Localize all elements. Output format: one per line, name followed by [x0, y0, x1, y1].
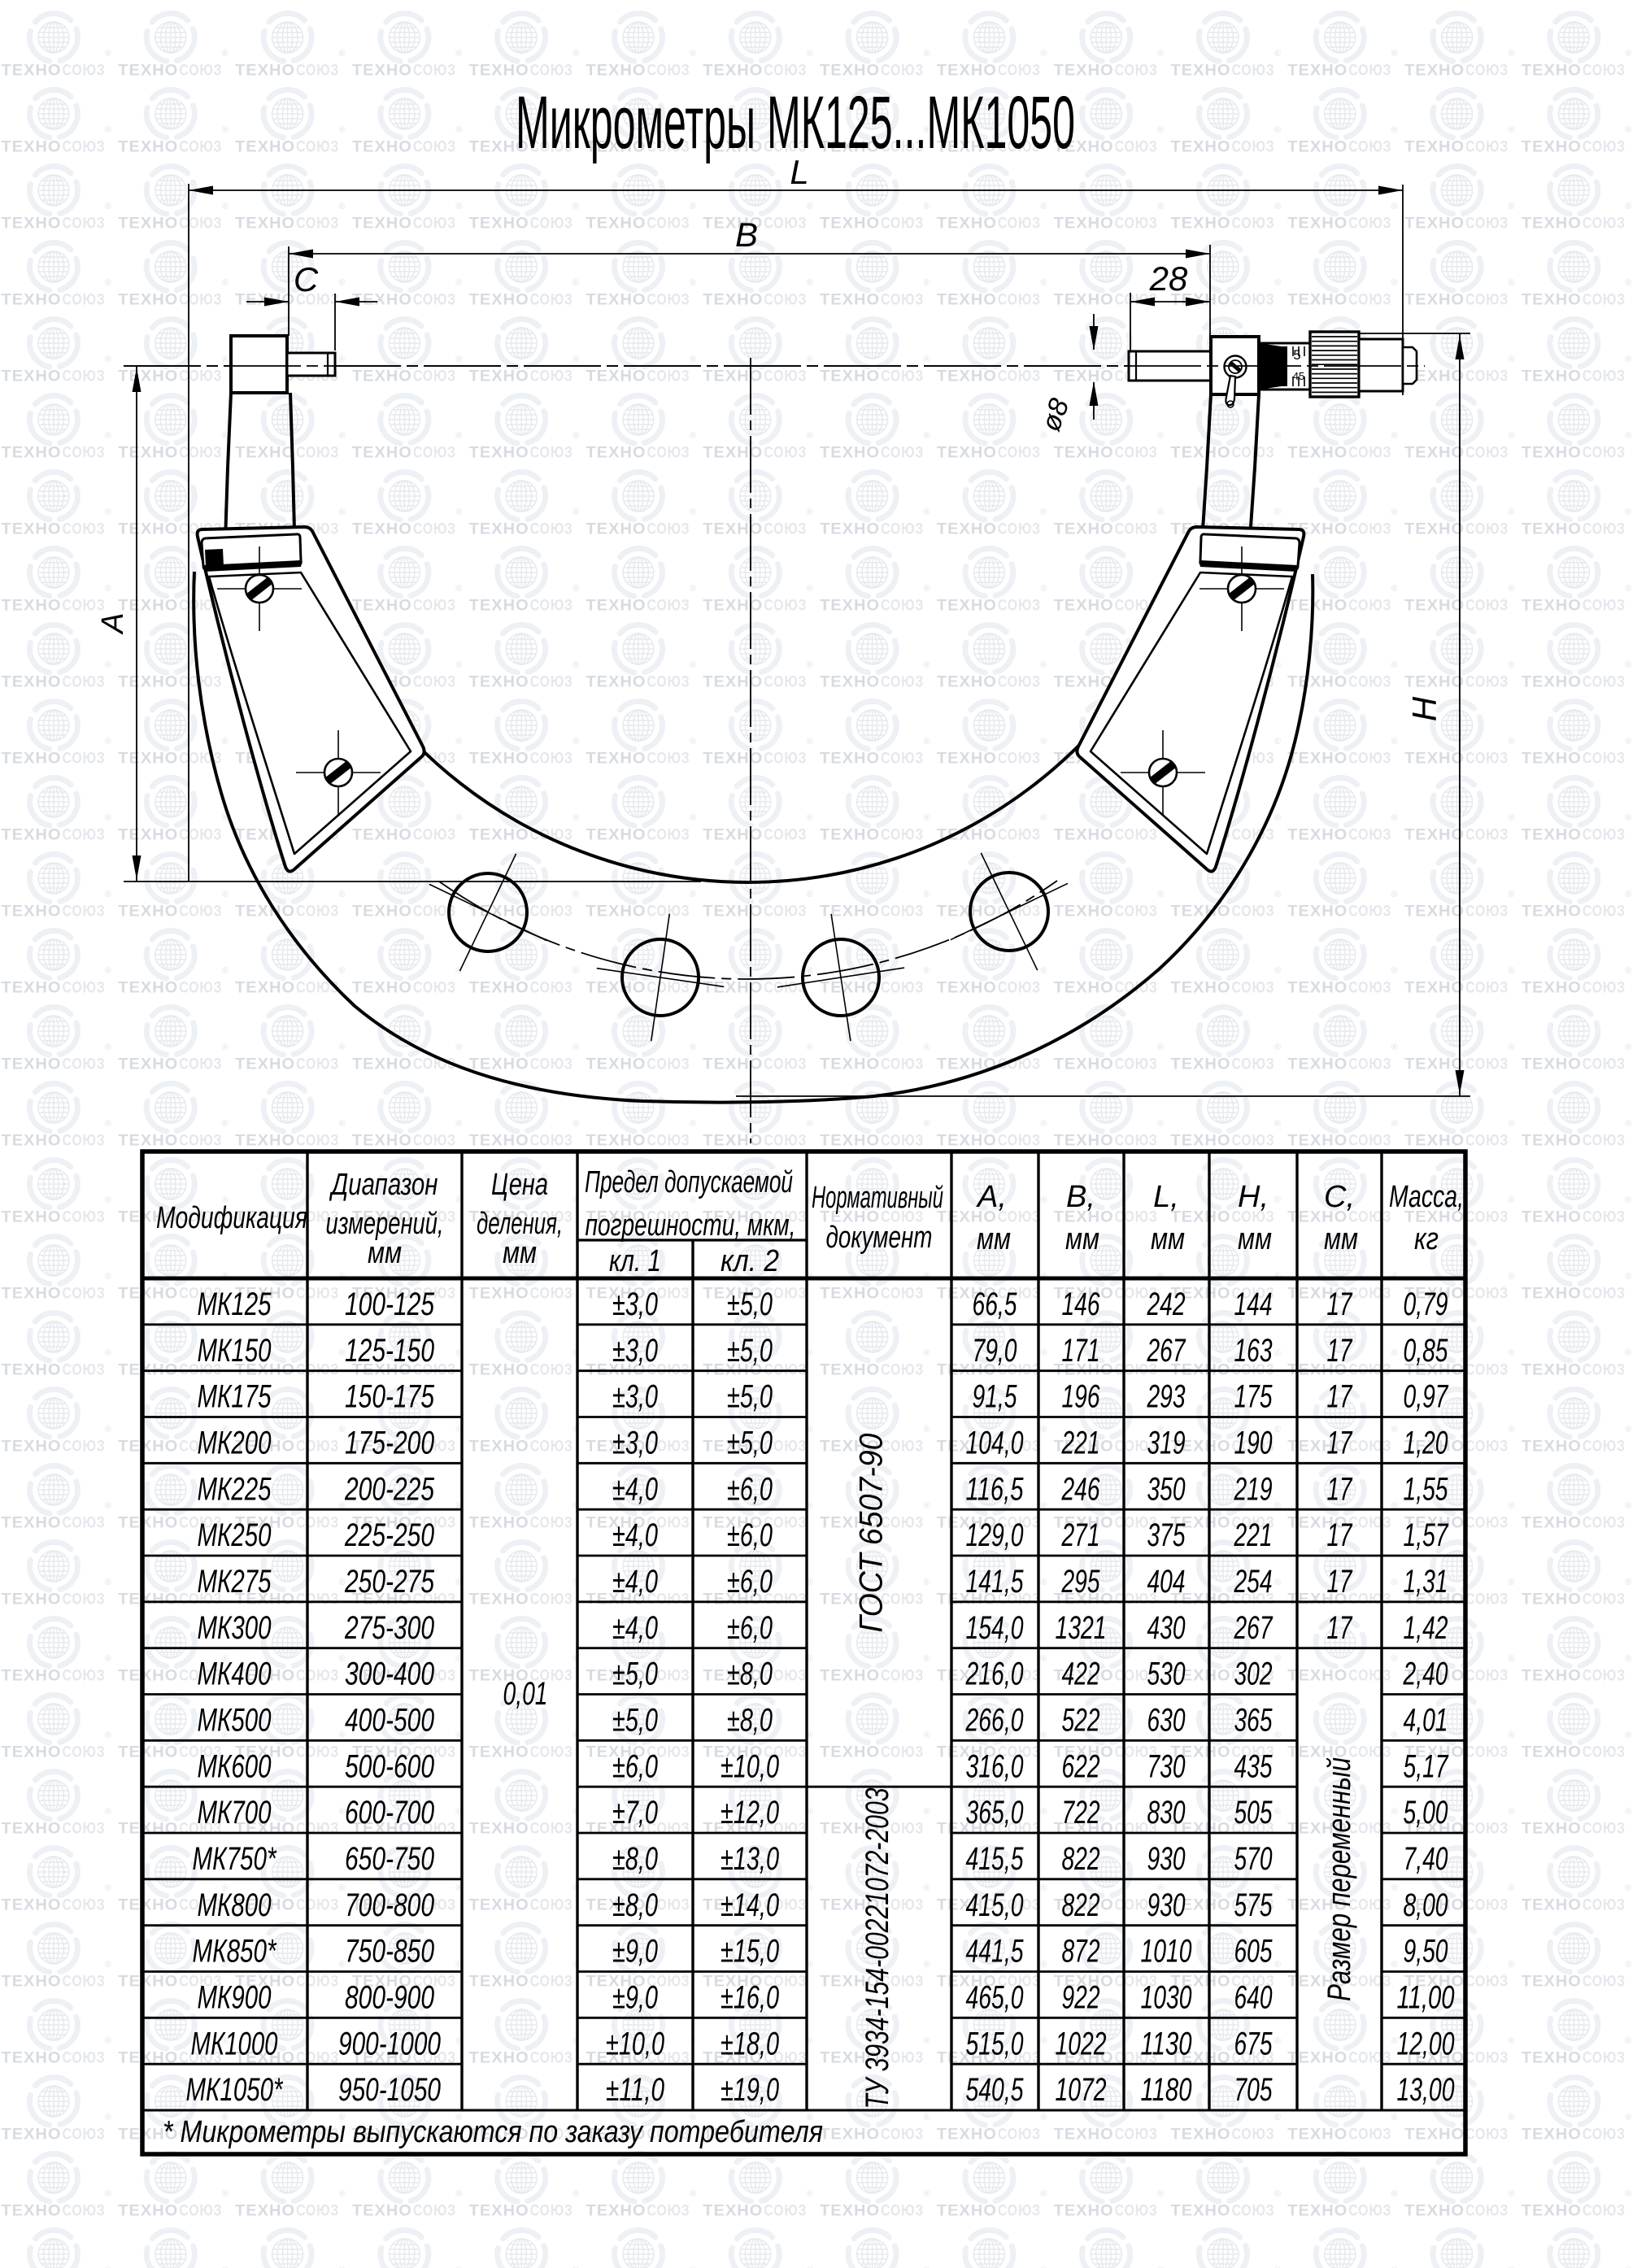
svg-text:404: 404	[1147, 1564, 1186, 1600]
svg-text:216,0: 216,0	[965, 1656, 1024, 1692]
svg-text:кл. 1: кл. 1	[609, 1244, 661, 1278]
svg-text:400-500: 400-500	[345, 1703, 434, 1739]
svg-text:±7,0: ±7,0	[612, 1795, 658, 1831]
svg-text:141,5: 141,5	[966, 1564, 1025, 1600]
svg-text:275-300: 275-300	[344, 1610, 434, 1646]
svg-text:±8,0: ±8,0	[727, 1656, 773, 1692]
svg-text:А,: А,	[976, 1180, 1007, 1214]
svg-text:730: 730	[1147, 1748, 1186, 1784]
svg-text:575: 575	[1234, 1887, 1273, 1923]
svg-text:1072: 1072	[1056, 2072, 1107, 2108]
svg-text:190: 190	[1234, 1426, 1273, 1461]
svg-text:Микрометры МК125...МК1050: Микрометры МК125...МК1050	[516, 81, 1075, 164]
svg-text:±10,0: ±10,0	[606, 2026, 664, 2061]
svg-text:125-150: 125-150	[345, 1333, 434, 1369]
svg-text:530: 530	[1147, 1656, 1186, 1692]
svg-text:С,: С,	[1324, 1180, 1355, 1214]
svg-text:±3,0: ±3,0	[612, 1286, 658, 1322]
svg-text:435: 435	[1234, 1748, 1273, 1784]
svg-text:12,00: 12,00	[1397, 2026, 1455, 2061]
svg-text:±10,0: ±10,0	[721, 1748, 779, 1784]
svg-text:±4,0: ±4,0	[612, 1471, 658, 1507]
svg-text:675: 675	[1234, 2026, 1273, 2061]
svg-text:1130: 1130	[1141, 2026, 1192, 2061]
svg-text:МК225: МК225	[198, 1471, 272, 1507]
svg-text:±8,0: ±8,0	[727, 1703, 773, 1739]
svg-text:±9,0: ±9,0	[612, 1980, 658, 2016]
svg-text:129,0: 129,0	[966, 1517, 1024, 1553]
svg-text:17: 17	[1327, 1471, 1353, 1507]
svg-text:±3,0: ±3,0	[612, 1379, 658, 1415]
svg-text:350: 350	[1147, 1471, 1186, 1507]
svg-text:погрешности, мкм,: погрешности, мкм,	[586, 1208, 796, 1243]
svg-text:мм: мм	[1324, 1222, 1358, 1256]
svg-text:МК125: МК125	[198, 1286, 272, 1322]
svg-text:415,0: 415,0	[966, 1887, 1024, 1923]
svg-text:мм: мм	[1238, 1222, 1272, 1256]
svg-text:830: 830	[1147, 1795, 1186, 1831]
svg-text:±5,0: ±5,0	[727, 1379, 773, 1415]
svg-text:МК175: МК175	[198, 1379, 272, 1415]
svg-text:91,5: 91,5	[973, 1379, 1018, 1415]
svg-text:±14,0: ±14,0	[721, 1887, 779, 1923]
svg-text:1,42: 1,42	[1404, 1610, 1448, 1646]
svg-text:Размер переменный: Размер переменный	[1321, 1757, 1357, 2001]
svg-text:1010: 1010	[1141, 1934, 1192, 1970]
svg-text:±3,0: ±3,0	[612, 1426, 658, 1461]
svg-text:104,0: 104,0	[966, 1426, 1024, 1461]
svg-text:293: 293	[1147, 1379, 1186, 1415]
svg-text:МК275: МК275	[198, 1564, 272, 1600]
svg-text:200-225: 200-225	[344, 1471, 434, 1507]
svg-text:267: 267	[1234, 1610, 1273, 1646]
svg-text:316,0: 316,0	[966, 1748, 1024, 1784]
svg-text:522: 522	[1062, 1703, 1100, 1739]
svg-text:документ: документ	[826, 1221, 933, 1255]
svg-text:кг: кг	[1414, 1222, 1439, 1256]
svg-text:700-800: 700-800	[345, 1887, 434, 1923]
svg-text:Цена: Цена	[491, 1168, 548, 1202]
svg-text:±11,0: ±11,0	[606, 2072, 664, 2108]
svg-text:±5,0: ±5,0	[727, 1426, 773, 1461]
svg-text:17: 17	[1327, 1426, 1353, 1461]
svg-text:7,40: 7,40	[1404, 1841, 1448, 1877]
svg-text:9,50: 9,50	[1404, 1934, 1448, 1970]
svg-text:163: 163	[1234, 1333, 1273, 1369]
svg-text:375: 375	[1147, 1517, 1186, 1553]
svg-text:150-175: 150-175	[345, 1379, 435, 1415]
svg-text:1030: 1030	[1141, 1980, 1192, 2016]
svg-text:250-275: 250-275	[344, 1564, 434, 1600]
svg-text:±13,0: ±13,0	[721, 1841, 779, 1877]
svg-text:МК250: МК250	[198, 1517, 272, 1553]
svg-text:822: 822	[1062, 1887, 1100, 1923]
svg-text:мм: мм	[368, 1236, 402, 1270]
svg-text:±4,0: ±4,0	[612, 1564, 658, 1600]
svg-text:900-1000: 900-1000	[338, 2026, 441, 2061]
svg-text:±5,0: ±5,0	[727, 1333, 773, 1369]
svg-text:705: 705	[1234, 2072, 1273, 2108]
svg-text:5,00: 5,00	[1404, 1795, 1448, 1831]
svg-text:±6,0: ±6,0	[727, 1517, 773, 1553]
svg-text:±16,0: ±16,0	[721, 1980, 779, 2016]
svg-text:116,5: 116,5	[966, 1471, 1025, 1507]
svg-text:5,17: 5,17	[1404, 1748, 1449, 1784]
svg-text:МК700: МК700	[198, 1795, 272, 1831]
svg-text:302: 302	[1234, 1656, 1273, 1692]
svg-text:171: 171	[1062, 1333, 1100, 1369]
svg-text:605: 605	[1234, 1934, 1273, 1970]
svg-text:17: 17	[1327, 1379, 1353, 1415]
svg-text:мм: мм	[1065, 1222, 1099, 1256]
svg-text:1,57: 1,57	[1404, 1517, 1449, 1553]
svg-text:МК850*: МК850*	[193, 1934, 277, 1970]
svg-text:±19,0: ±19,0	[721, 2072, 779, 2108]
svg-text:11,00: 11,00	[1397, 1980, 1455, 2016]
svg-text:L: L	[790, 153, 808, 191]
svg-text:17: 17	[1327, 1333, 1353, 1369]
svg-text:МК900: МК900	[198, 1980, 272, 2016]
svg-text:±12,0: ±12,0	[721, 1795, 779, 1831]
svg-text:0,97: 0,97	[1404, 1379, 1449, 1415]
svg-text:B: B	[735, 215, 758, 254]
svg-text:кл. 2: кл. 2	[721, 1244, 779, 1278]
svg-text:266,0: 266,0	[965, 1703, 1024, 1739]
svg-text:422: 422	[1062, 1656, 1100, 1692]
svg-text:295: 295	[1061, 1564, 1100, 1600]
svg-text:221: 221	[1234, 1517, 1273, 1553]
svg-text:МК1050*: МК1050*	[186, 2072, 284, 2108]
svg-text:±9,0: ±9,0	[612, 1934, 658, 1970]
svg-text:441,5: 441,5	[966, 1934, 1025, 1970]
svg-text:±5,0: ±5,0	[612, 1656, 658, 1692]
svg-text:79,0: 79,0	[973, 1333, 1017, 1369]
svg-text:Масса,: Масса,	[1389, 1180, 1464, 1214]
svg-text:800-900: 800-900	[345, 1980, 434, 2016]
svg-text:300-400: 300-400	[345, 1656, 434, 1692]
svg-text:271: 271	[1061, 1517, 1100, 1553]
svg-text:45: 45	[1293, 370, 1304, 382]
svg-text:МК150: МК150	[198, 1333, 272, 1369]
svg-text:930: 930	[1147, 1841, 1186, 1877]
svg-text:922: 922	[1062, 1980, 1100, 2016]
svg-text:17: 17	[1327, 1610, 1353, 1646]
svg-text:930: 930	[1147, 1887, 1186, 1923]
svg-text:МК500: МК500	[198, 1703, 272, 1739]
svg-text:100-125: 100-125	[345, 1286, 435, 1322]
svg-text:822: 822	[1062, 1841, 1100, 1877]
svg-text:МК800: МК800	[198, 1887, 272, 1923]
svg-text:Модификация: Модификация	[156, 1201, 307, 1235]
svg-text:L,: L,	[1153, 1180, 1179, 1214]
svg-text:650-750: 650-750	[345, 1841, 434, 1877]
svg-text:430: 430	[1147, 1610, 1186, 1646]
svg-text:0,85: 0,85	[1404, 1333, 1449, 1369]
svg-text:622: 622	[1062, 1748, 1100, 1784]
svg-text:1321: 1321	[1056, 1610, 1107, 1646]
svg-text:H: H	[1405, 696, 1443, 721]
svg-text:505: 505	[1234, 1795, 1273, 1831]
svg-text:8,00: 8,00	[1404, 1887, 1448, 1923]
svg-text:В,: В,	[1066, 1180, 1095, 1214]
svg-text:66,5: 66,5	[973, 1286, 1018, 1322]
svg-text:мм: мм	[977, 1222, 1011, 1256]
svg-text:МК750*: МК750*	[193, 1841, 277, 1877]
svg-text:267: 267	[1147, 1333, 1186, 1369]
svg-text:219: 219	[1234, 1471, 1273, 1507]
svg-text:1,31: 1,31	[1404, 1564, 1448, 1600]
svg-text:Н,: Н,	[1238, 1180, 1269, 1214]
svg-text:500-600: 500-600	[345, 1748, 434, 1784]
svg-text:ГОСТ 6507-90: ГОСТ 6507-90	[854, 1434, 890, 1633]
svg-text:1180: 1180	[1141, 2072, 1192, 2108]
svg-text:242: 242	[1147, 1286, 1186, 1322]
svg-text:950-1050: 950-1050	[338, 2072, 441, 2108]
svg-text:28: 28	[1149, 259, 1188, 298]
svg-text:±6,0: ±6,0	[727, 1564, 773, 1600]
svg-text:ТУ 3934-154-00221072-2003: ТУ 3934-154-00221072-2003	[860, 1788, 895, 2109]
svg-text:570: 570	[1234, 1841, 1273, 1877]
svg-text:144: 144	[1234, 1286, 1273, 1322]
svg-text:* Микрометры выпускаются по за: * Микрометры выпускаются по заказу потре…	[163, 2115, 823, 2149]
svg-text:17: 17	[1327, 1564, 1353, 1600]
svg-text:МК300: МК300	[198, 1610, 272, 1646]
svg-text:4,01: 4,01	[1404, 1703, 1448, 1739]
svg-text:175: 175	[1234, 1379, 1273, 1415]
svg-text:1,55: 1,55	[1404, 1471, 1449, 1507]
svg-text:722: 722	[1062, 1795, 1100, 1831]
svg-text:±4,0: ±4,0	[612, 1610, 658, 1646]
svg-text:±5,0: ±5,0	[612, 1703, 658, 1739]
svg-text:319: 319	[1147, 1426, 1186, 1461]
svg-text:415,5: 415,5	[966, 1841, 1025, 1877]
svg-text:±4,0: ±4,0	[612, 1517, 658, 1553]
svg-text:±5,0: ±5,0	[727, 1286, 773, 1322]
svg-text:175-200: 175-200	[345, 1426, 434, 1461]
svg-text:МК600: МК600	[198, 1748, 272, 1784]
svg-text:2,40: 2,40	[1403, 1656, 1448, 1692]
svg-text:0,79: 0,79	[1404, 1286, 1448, 1322]
svg-text:±8,0: ±8,0	[612, 1887, 658, 1923]
svg-text:246: 246	[1061, 1471, 1100, 1507]
svg-text:1022: 1022	[1056, 2026, 1107, 2061]
svg-text:±15,0: ±15,0	[721, 1934, 779, 1970]
svg-text:600-700: 600-700	[345, 1795, 434, 1831]
svg-text:13,00: 13,00	[1397, 2072, 1455, 2108]
svg-text:±6,0: ±6,0	[612, 1748, 658, 1784]
svg-text:154,0: 154,0	[966, 1610, 1024, 1646]
svg-text:196: 196	[1062, 1379, 1101, 1415]
svg-text:мм: мм	[1151, 1222, 1185, 1256]
svg-text:254: 254	[1234, 1564, 1273, 1600]
svg-text:225-250: 225-250	[344, 1517, 434, 1553]
svg-text:МК1000: МК1000	[191, 2026, 278, 2061]
svg-text:±6,0: ±6,0	[727, 1610, 773, 1646]
svg-text:365,0: 365,0	[966, 1795, 1024, 1831]
svg-text:750-850: 750-850	[345, 1934, 434, 1970]
svg-text:C: C	[294, 260, 319, 298]
svg-text:МК400: МК400	[198, 1656, 272, 1692]
svg-text:365: 365	[1234, 1703, 1273, 1739]
svg-text:515,0: 515,0	[966, 2026, 1024, 2061]
svg-text:Диапазон: Диапазон	[329, 1168, 438, 1202]
svg-text:мм: мм	[503, 1236, 537, 1270]
svg-text:221: 221	[1061, 1426, 1100, 1461]
svg-text:540,5: 540,5	[966, 2072, 1025, 2108]
svg-text:630: 630	[1147, 1703, 1186, 1739]
svg-text:0,01: 0,01	[503, 1676, 548, 1712]
svg-text:±18,0: ±18,0	[721, 2026, 779, 2061]
svg-text:465,0: 465,0	[966, 1980, 1024, 2016]
svg-text:±3,0: ±3,0	[612, 1333, 658, 1369]
svg-text:Нормативный: Нормативный	[812, 1181, 943, 1215]
svg-text:5: 5	[1293, 347, 1300, 363]
svg-text:17: 17	[1327, 1517, 1353, 1553]
svg-text:A: A	[96, 612, 130, 634]
svg-text:17: 17	[1327, 1286, 1353, 1322]
svg-text:±8,0: ±8,0	[612, 1841, 658, 1877]
svg-text:±6,0: ±6,0	[727, 1471, 773, 1507]
svg-text:МК200: МК200	[198, 1426, 272, 1461]
svg-text:Предел допускаемой: Предел допускаемой	[585, 1165, 793, 1199]
svg-text:872: 872	[1062, 1934, 1100, 1970]
svg-text:146: 146	[1062, 1286, 1101, 1322]
svg-text:1,20: 1,20	[1404, 1426, 1448, 1461]
svg-text:640: 640	[1234, 1980, 1273, 2016]
